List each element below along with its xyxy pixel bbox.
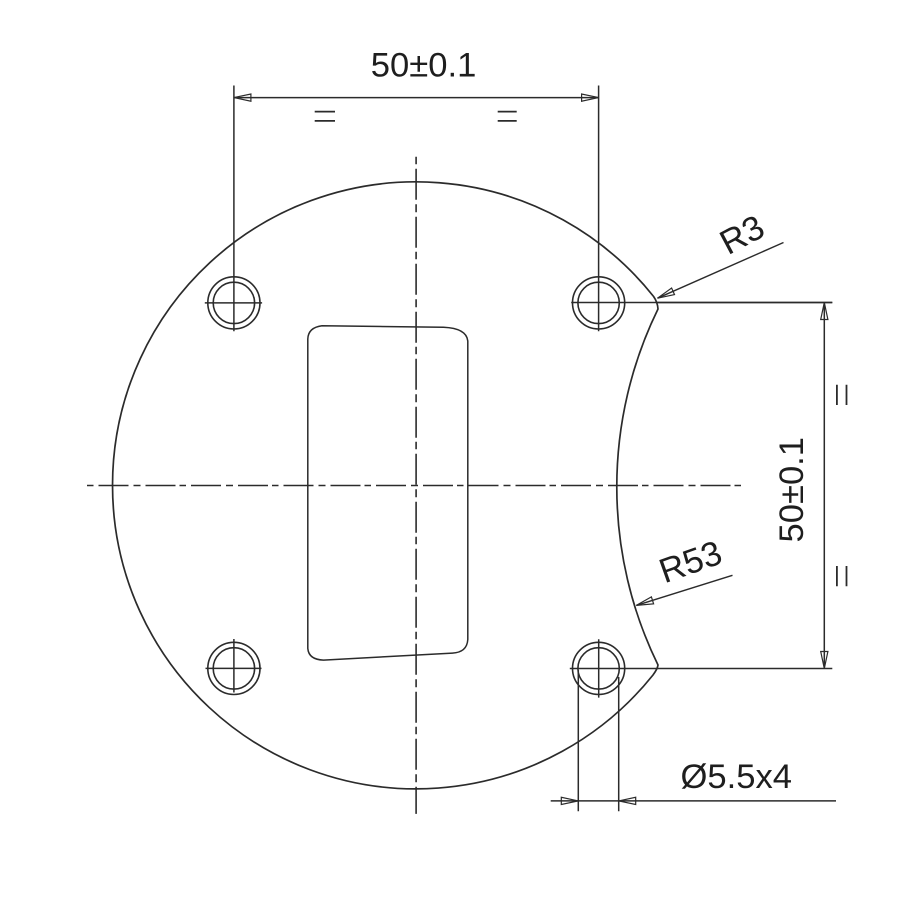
svg-text:Ø5.5x4: Ø5.5x4 <box>681 758 792 796</box>
svg-text:50±0.1: 50±0.1 <box>371 47 477 85</box>
svg-text:R53: R53 <box>654 534 726 591</box>
svg-text:50±0.1: 50±0.1 <box>773 437 811 543</box>
svg-text:R3: R3 <box>714 208 771 262</box>
